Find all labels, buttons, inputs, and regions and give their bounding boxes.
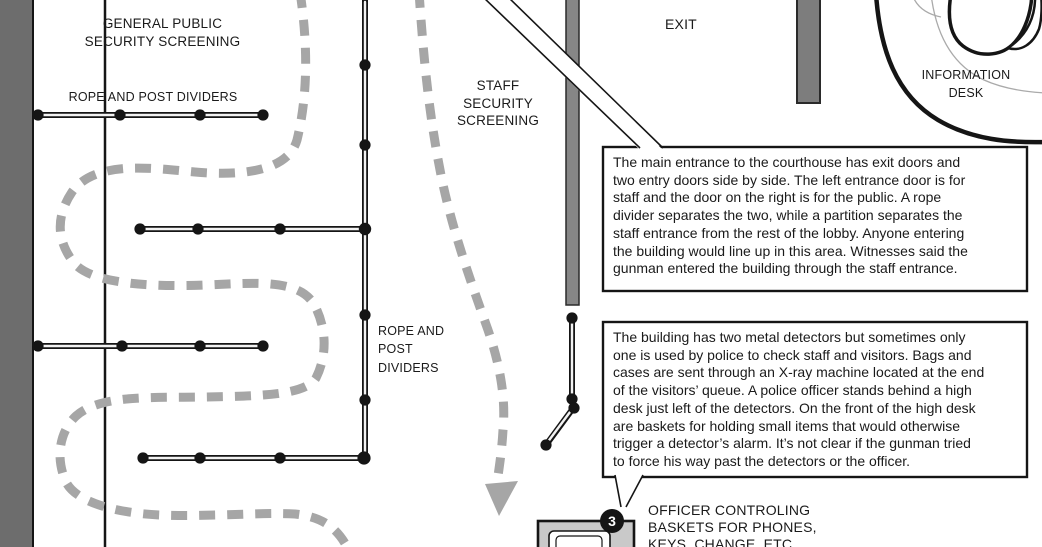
label-exit: EXIT [665,16,697,34]
staff-entrance-path [419,0,504,476]
courthouse-security-diagram: GENERAL PUBLIC SECURITY SCREENING ROPE A… [0,0,1042,547]
visitor-queue-path [60,0,351,547]
left-exterior-wall [0,0,33,547]
rope-post-dividers [32,0,579,465]
step-badge-3: 3 [600,509,624,533]
label-staff-security-screening: STAFF SECURITY SCREENING [445,77,551,130]
label-officer-controling-baskets: OFFICER CONTROLING BASKETS FOR PHONES, K… [648,502,817,547]
label-information-desk: INFORMATION DESK [906,66,1026,103]
staff-partition-wall [566,0,579,305]
label-rope-post-dividers-top: ROPE AND POST DIVIDERS [40,88,266,106]
callout-text-metal-detectors: The building has two metal detectors but… [603,322,1027,477]
callout-wedge-badge [615,474,643,509]
arrow-down-icon [485,481,518,516]
label-rope-post-dividers-left: ROPE AND POST DIVIDERS [378,322,444,377]
callout-text-main-entrance: The main entrance to the courthouse has … [603,147,1027,291]
exit-wall-segment [797,0,820,103]
label-general-public-screening: GENERAL PUBLIC SECURITY SCREENING [60,15,265,50]
